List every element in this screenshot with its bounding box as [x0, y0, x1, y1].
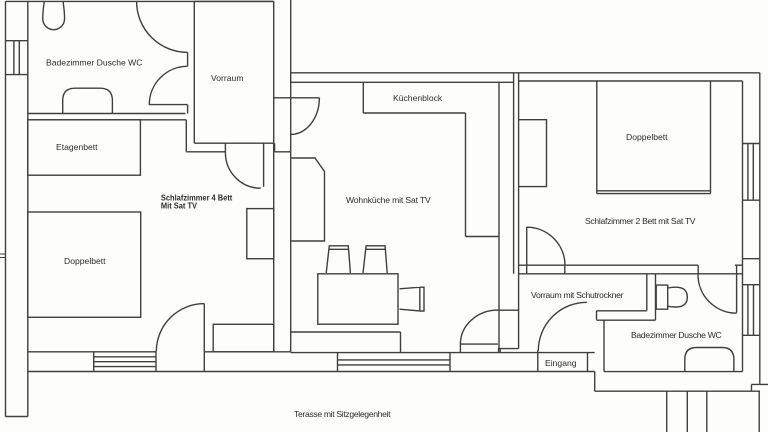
svg-text:Schlafzimmer 2 Bett mit Sat TV: Schlafzimmer 2 Bett mit Sat TV: [585, 216, 696, 226]
svg-text:Vorraum: Vorraum: [211, 73, 243, 83]
svg-text:Doppelbett: Doppelbett: [64, 256, 106, 266]
svg-text:Küchenblock: Küchenblock: [393, 93, 443, 103]
svg-text:Badezimmer Dusche WC: Badezimmer Dusche WC: [46, 58, 142, 68]
svg-text:Badezimmer Dusche WC: Badezimmer Dusche WC: [631, 330, 722, 340]
svg-text:Vorraum mit Schutrockner: Vorraum mit Schutrockner: [531, 290, 624, 300]
svg-text:Mit Sat TV: Mit Sat TV: [161, 201, 198, 211]
svg-text:Eingang: Eingang: [545, 358, 577, 368]
svg-text:Terasse mit Sitzgelegenheit: Terasse mit Sitzgelegenheit: [294, 409, 391, 419]
svg-text:Etagenbett: Etagenbett: [56, 142, 98, 152]
svg-text:Wohnküche mit Sat TV: Wohnküche mit Sat TV: [346, 195, 431, 205]
svg-text:Doppelbett: Doppelbett: [626, 132, 668, 142]
